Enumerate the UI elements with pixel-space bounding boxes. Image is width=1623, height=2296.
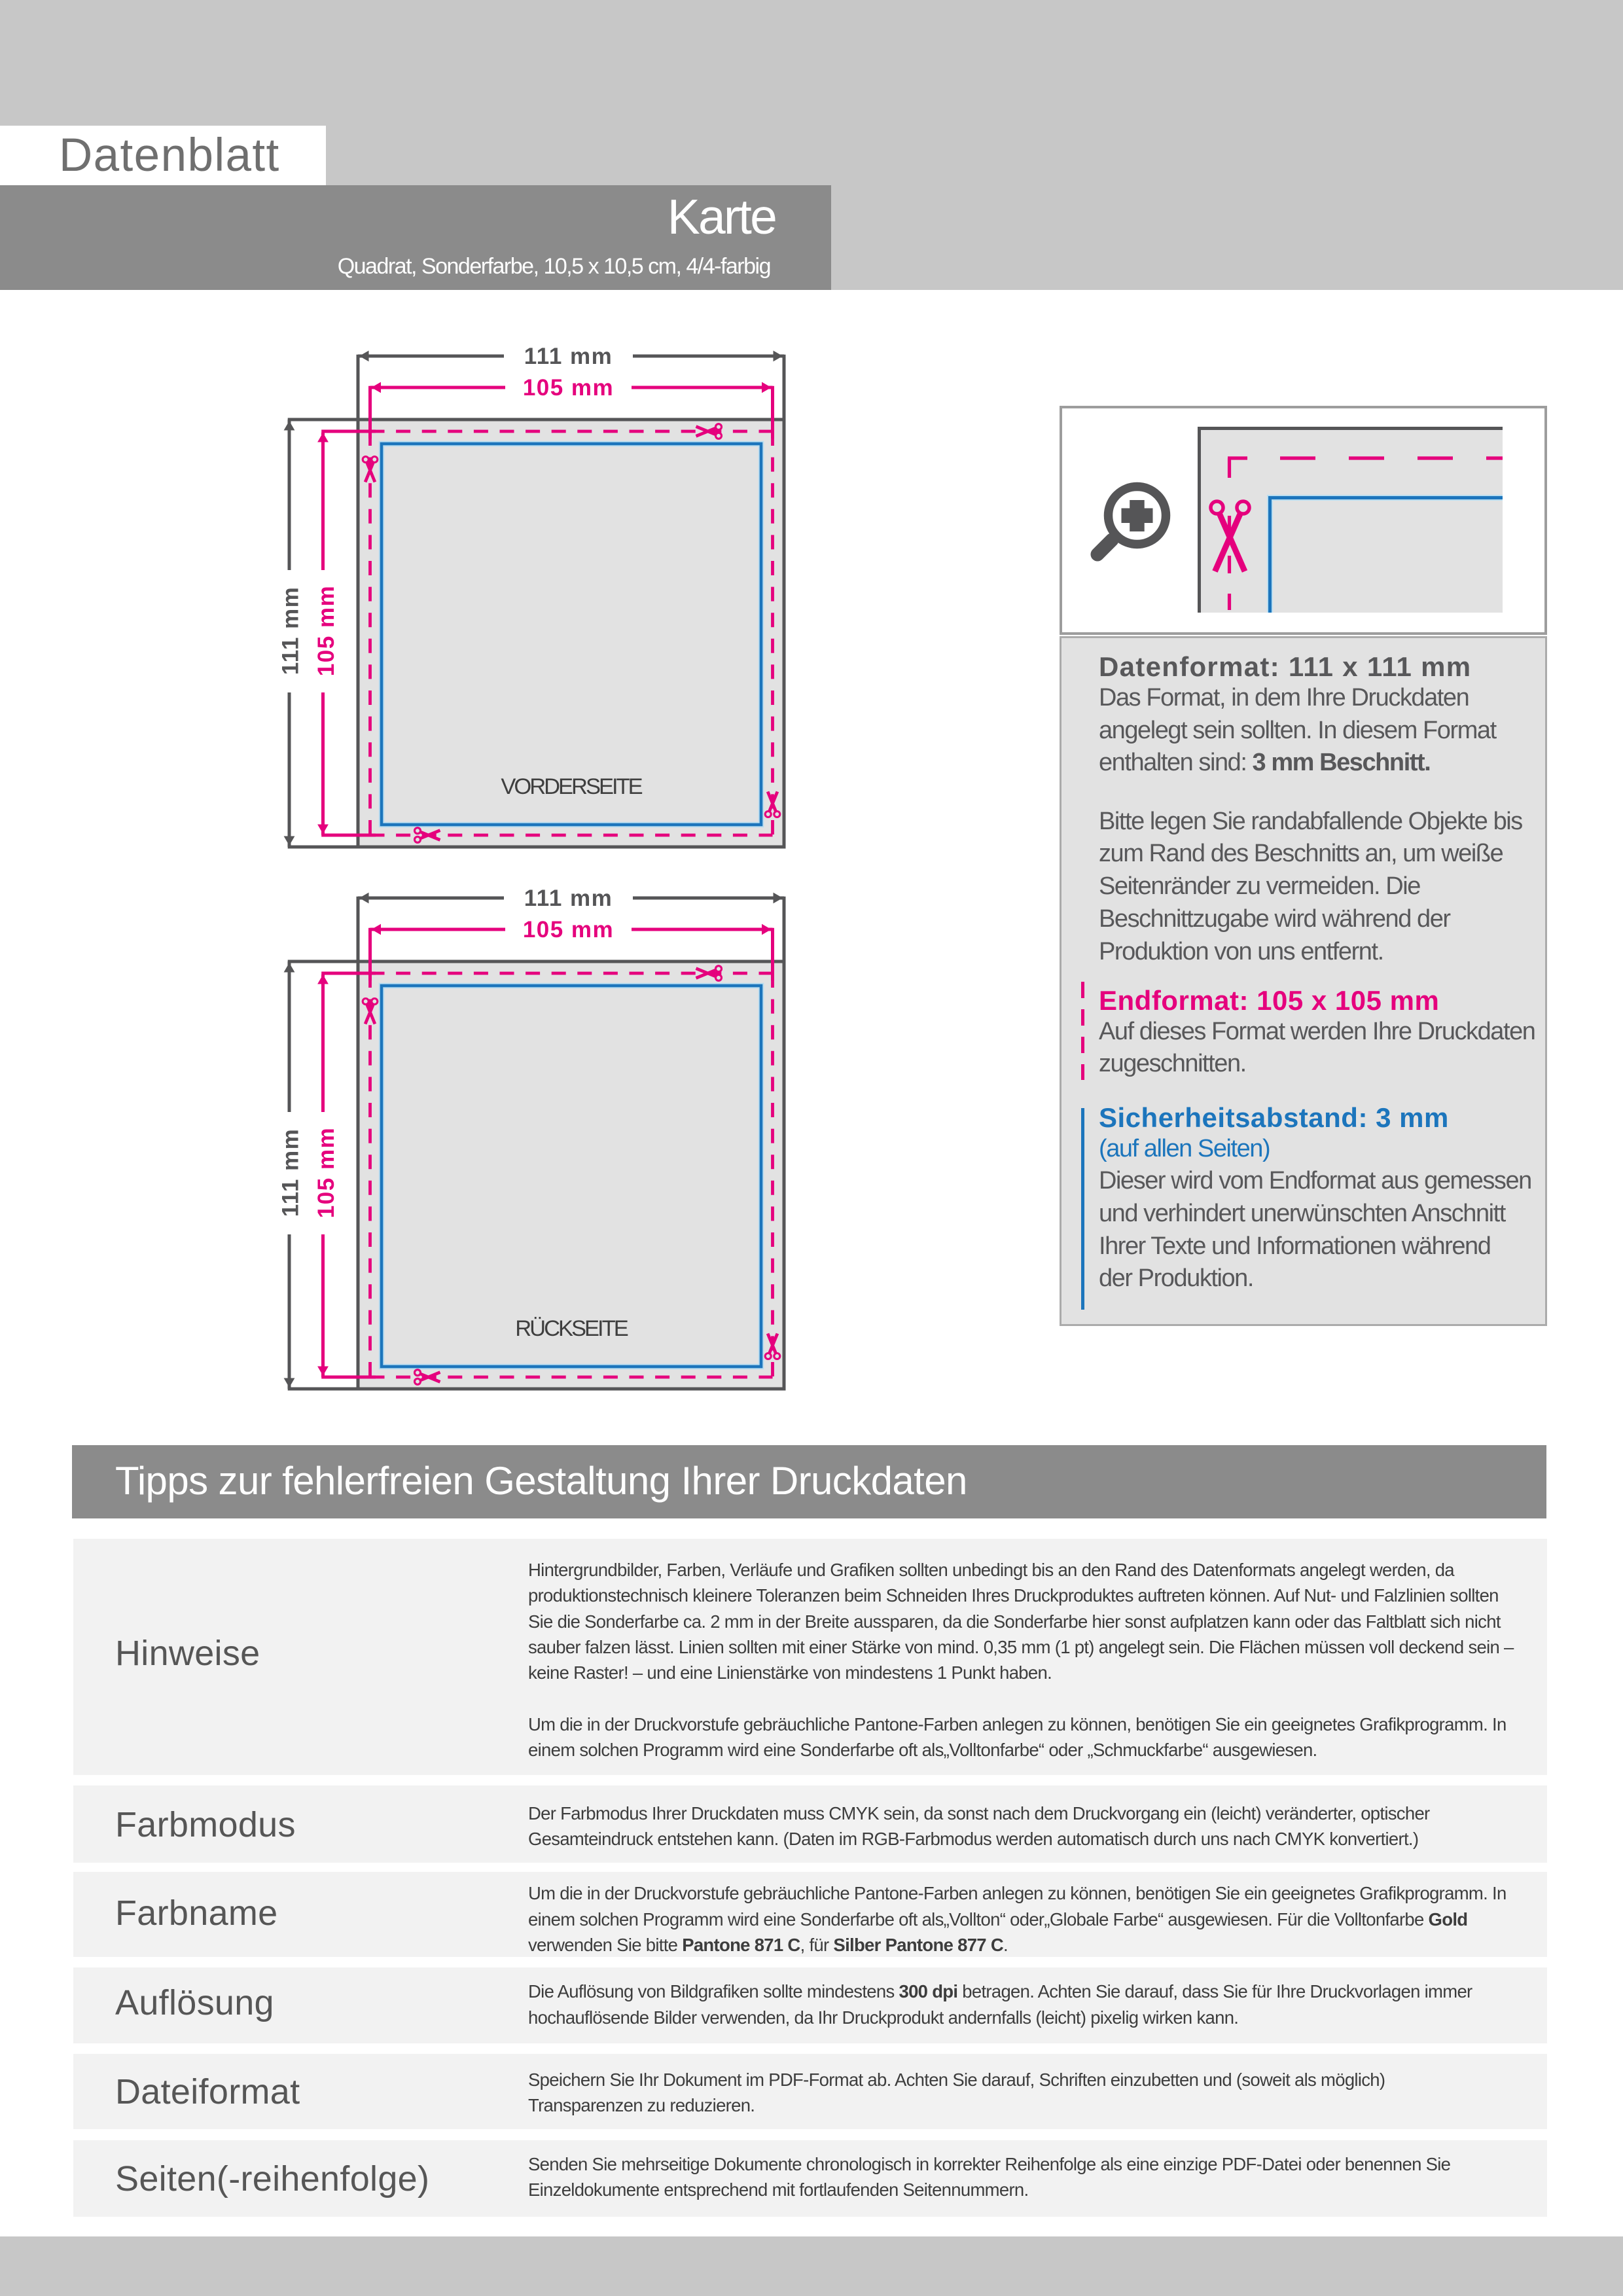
svg-text:RÜCKSEITE: RÜCKSEITE [515,1316,628,1341]
svg-text:VORDERSEITE: VORDERSEITE [501,774,642,799]
